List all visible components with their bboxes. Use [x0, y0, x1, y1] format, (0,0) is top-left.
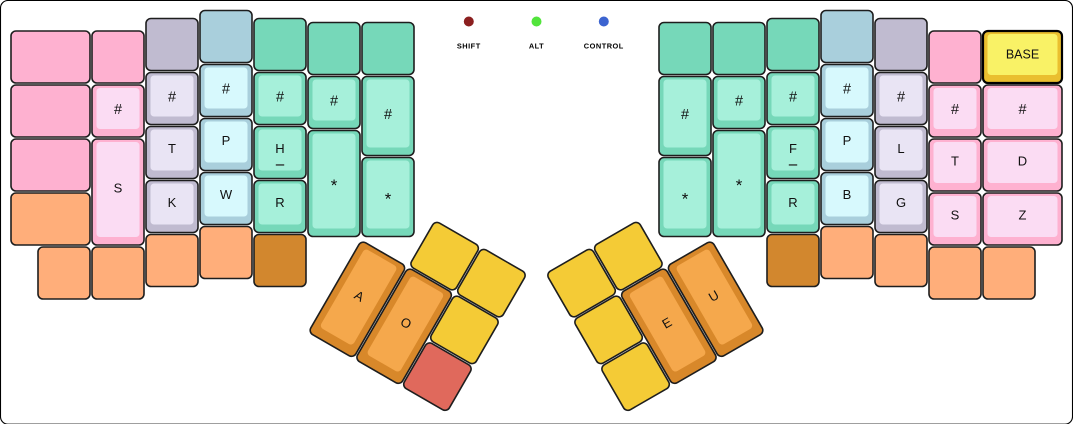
svg-text:#: # [843, 81, 851, 97]
svg-text:T: T [951, 154, 959, 169]
svg-text:F: F [789, 141, 797, 156]
svg-text:#: # [1018, 102, 1026, 118]
svg-text:#: # [222, 81, 230, 97]
svg-text:#: # [330, 93, 338, 109]
svg-text:#: # [276, 89, 284, 105]
svg-text:K: K [168, 195, 177, 210]
svg-text:#: # [384, 107, 392, 123]
svg-text:BASE: BASE [1006, 48, 1039, 62]
svg-text:P: P [843, 133, 852, 148]
svg-text:*: * [385, 190, 392, 209]
svg-text:*: * [736, 176, 743, 195]
svg-text:B: B [843, 187, 852, 202]
svg-text:SHIFT: SHIFT [457, 42, 481, 51]
svg-text:P: P [222, 133, 231, 148]
svg-text:#: # [735, 93, 743, 109]
svg-text:#: # [114, 102, 122, 118]
svg-text:#: # [168, 89, 176, 105]
svg-text:*: * [682, 190, 689, 209]
svg-text:W: W [220, 187, 233, 202]
svg-text:R: R [788, 195, 797, 210]
svg-text:#: # [681, 107, 689, 123]
svg-text:R: R [275, 195, 284, 210]
svg-text:S: S [114, 181, 123, 196]
svg-text:#: # [789, 89, 797, 105]
svg-text:D: D [1018, 154, 1027, 169]
svg-text:Z: Z [1019, 208, 1027, 223]
svg-text:T: T [168, 141, 176, 156]
svg-text:*: * [331, 176, 338, 195]
svg-text:S: S [951, 208, 960, 223]
svg-text:H: H [275, 141, 284, 156]
svg-text:L: L [897, 141, 904, 156]
svg-text:G: G [896, 195, 906, 210]
svg-text:ALT: ALT [529, 42, 544, 51]
svg-text:#: # [951, 102, 959, 118]
svg-text:CONTROL: CONTROL [584, 42, 624, 51]
svg-text:#: # [897, 89, 905, 105]
